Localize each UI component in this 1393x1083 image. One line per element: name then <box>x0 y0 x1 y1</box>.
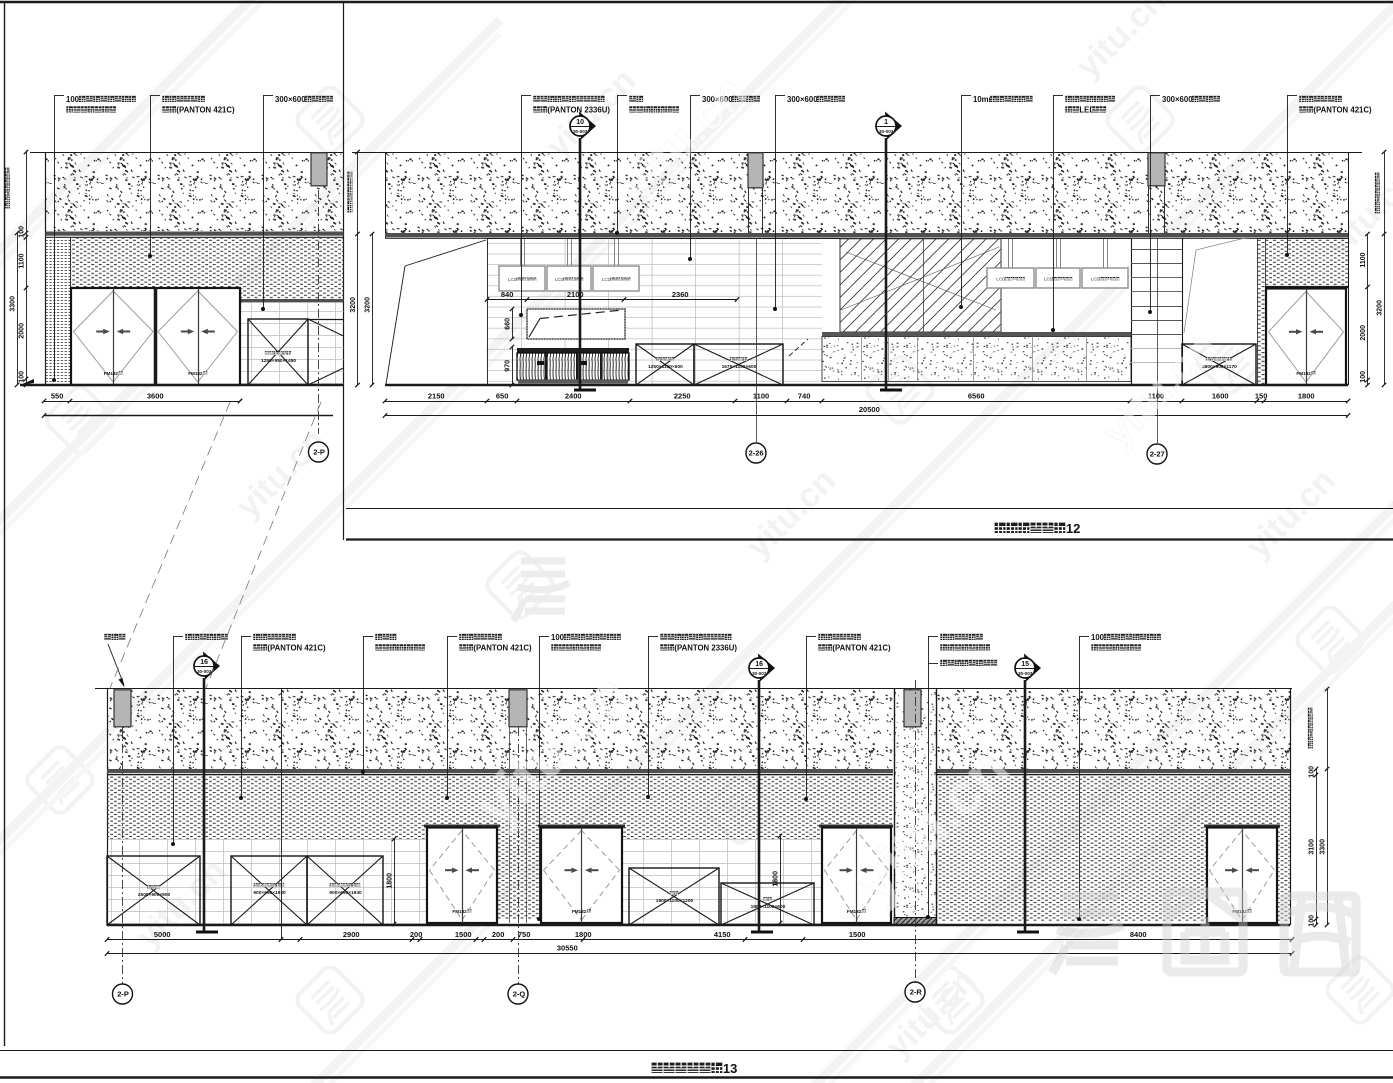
svg-text:740: 740 <box>798 392 811 401</box>
svg-text:2360: 2360 <box>672 290 689 299</box>
svg-text:16: 16 <box>755 661 763 668</box>
svg-text:200: 200 <box>492 930 505 939</box>
svg-text:1: 1 <box>884 119 888 126</box>
svg-text:100: 100 <box>19 226 26 238</box>
svg-text:3100: 3100 <box>1309 839 1316 855</box>
svg-text:750: 750 <box>518 930 531 939</box>
svg-text:2250: 2250 <box>674 392 691 401</box>
svg-text:300×600: 300×600 <box>787 95 818 104</box>
svg-text:1800: 1800 <box>575 930 592 939</box>
svg-text:LCD: LCD <box>508 277 517 282</box>
svg-text:LCD: LCD <box>555 277 564 282</box>
svg-text:3200: 3200 <box>365 297 372 313</box>
svg-text:2-26: 2-26 <box>749 449 764 458</box>
svg-text:FM1821: FM1821 <box>188 371 205 376</box>
svg-text:660: 660 <box>505 318 512 330</box>
svg-text:2150: 2150 <box>428 392 445 401</box>
svg-text:(PANTON 421C): (PANTON 421C) <box>267 644 326 653</box>
svg-text:970: 970 <box>505 360 512 372</box>
svg-text:LCD: LCD <box>1091 277 1100 282</box>
svg-text:2-P: 2-P <box>313 448 325 457</box>
svg-text:3200: 3200 <box>1377 300 1384 316</box>
svg-text:8400: 8400 <box>1130 930 1147 939</box>
svg-text:2500×900×900: 2500×900×900 <box>138 892 171 898</box>
svg-text:10: 10 <box>576 119 584 126</box>
svg-text:30-003: 30-003 <box>879 129 894 134</box>
svg-text:(PANTON 421C): (PANTON 421C) <box>473 644 532 653</box>
svg-text:200: 200 <box>410 930 423 939</box>
svg-text:13: 13 <box>723 1061 737 1076</box>
svg-text:100: 100 <box>1309 915 1316 927</box>
svg-text:1100: 1100 <box>1360 252 1367 267</box>
svg-text:300×600: 300×600 <box>275 95 306 104</box>
svg-text:6560: 6560 <box>968 392 985 401</box>
svg-text:30550: 30550 <box>557 944 578 953</box>
svg-text:2000: 2000 <box>19 323 26 339</box>
svg-text:1900×1100×1200: 1900×1100×1200 <box>656 898 694 904</box>
svg-text:1100: 1100 <box>19 253 26 268</box>
svg-text:FM1821: FM1821 <box>847 909 864 914</box>
svg-text:(PANTON 421C): (PANTON 421C) <box>176 106 235 115</box>
svg-text:30-003: 30-003 <box>573 129 588 134</box>
svg-text:4150: 4150 <box>714 930 731 939</box>
svg-text:FM1821: FM1821 <box>1296 371 1313 376</box>
svg-text:100: 100 <box>66 95 80 104</box>
svg-text:3300: 3300 <box>10 296 17 312</box>
svg-text:300×600: 300×600 <box>1162 95 1193 104</box>
svg-text:840: 840 <box>501 290 514 299</box>
svg-text:FM1821: FM1821 <box>104 371 121 376</box>
svg-text:1250×950×1450: 1250×950×1450 <box>261 358 296 364</box>
svg-text:1250×1150×600: 1250×1150×600 <box>648 364 683 370</box>
svg-text:1500: 1500 <box>849 930 866 939</box>
svg-text:1600: 1600 <box>1212 392 1229 401</box>
svg-text:1800: 1800 <box>387 873 394 889</box>
svg-text:3300: 3300 <box>1320 839 1327 855</box>
svg-text:1500: 1500 <box>455 930 472 939</box>
svg-text:3600: 3600 <box>147 392 164 401</box>
svg-text:FM1821: FM1821 <box>572 909 589 914</box>
svg-text:15: 15 <box>1021 661 1029 668</box>
svg-text:550: 550 <box>51 392 64 401</box>
svg-text:(PANTON 421C): (PANTON 421C) <box>1313 106 1372 115</box>
svg-text:3200: 3200 <box>350 297 357 313</box>
svg-text:2-27: 2-27 <box>1150 450 1165 459</box>
svg-text:2400: 2400 <box>565 392 582 401</box>
svg-text:1100: 1100 <box>753 392 769 401</box>
svg-text:1675×1150×600: 1675×1150×600 <box>722 364 757 370</box>
svg-text:100: 100 <box>19 371 26 383</box>
svg-text:30-003: 30-003 <box>1018 671 1033 676</box>
svg-text:650: 650 <box>496 392 509 401</box>
svg-text:30-003: 30-003 <box>752 671 767 676</box>
svg-text:100: 100 <box>1091 633 1105 642</box>
svg-text:2900: 2900 <box>343 930 360 939</box>
svg-text:2-Q: 2-Q <box>513 990 526 999</box>
svg-text:1800: 1800 <box>773 871 780 887</box>
svg-text:100: 100 <box>551 633 565 642</box>
svg-text:16: 16 <box>200 659 208 666</box>
svg-text:2-R: 2-R <box>910 988 923 997</box>
svg-text:1800: 1800 <box>1298 392 1315 401</box>
svg-text:20500: 20500 <box>859 405 880 414</box>
svg-text:900×650×1930: 900×650×1930 <box>329 890 362 896</box>
svg-text:LCD: LCD <box>602 277 611 282</box>
svg-text:LCD: LCD <box>996 277 1005 282</box>
svg-text:LCD: LCD <box>1044 277 1053 282</box>
svg-text:2000: 2000 <box>1360 325 1367 341</box>
svg-text:FM1821: FM1821 <box>452 909 469 914</box>
svg-text:(PANTON 2336U): (PANTON 2336U) <box>674 644 737 653</box>
svg-text:(PANTON 2336U): (PANTON 2336U) <box>547 106 610 115</box>
svg-text:30-003: 30-003 <box>197 669 212 674</box>
svg-text:100: 100 <box>1309 766 1316 778</box>
svg-text:100: 100 <box>1360 371 1367 383</box>
svg-text:5000: 5000 <box>154 930 171 939</box>
svg-text:2-P: 2-P <box>117 990 129 999</box>
svg-text:12: 12 <box>1066 521 1080 536</box>
svg-text:150: 150 <box>1255 392 1268 401</box>
svg-text:(PANTON 421C): (PANTON 421C) <box>832 644 891 653</box>
